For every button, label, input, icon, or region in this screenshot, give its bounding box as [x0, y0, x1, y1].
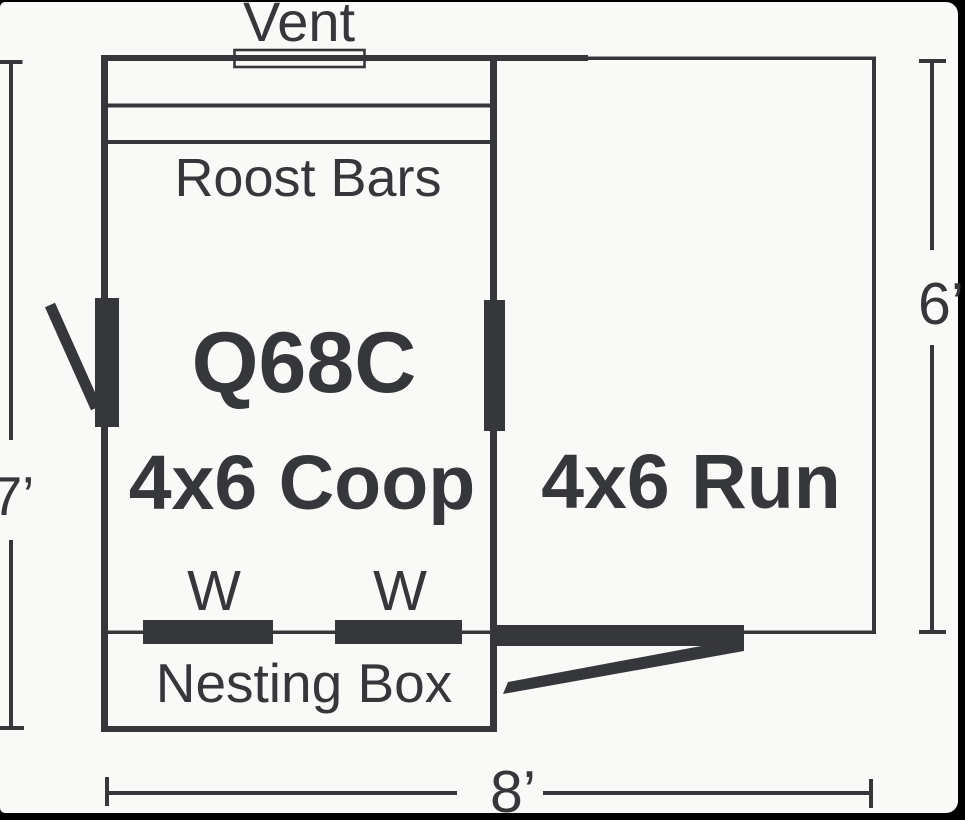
svg-text:W: W [187, 559, 241, 623]
svg-text:Q68C: Q68C [192, 315, 417, 411]
svg-text:W: W [373, 559, 427, 623]
svg-text:Roost Bars: Roost Bars [174, 148, 441, 208]
svg-text:4x6 Coop: 4x6 Coop [129, 440, 476, 526]
svg-text:4x6 Run: 4x6 Run [541, 439, 841, 525]
svg-text:Nesting Box: Nesting Box [156, 652, 453, 714]
svg-text:8’: 8’ [490, 759, 536, 820]
svg-text:7’: 7’ [0, 465, 34, 527]
svg-text:6’: 6’ [918, 271, 964, 337]
svg-text:Vent: Vent [243, 0, 356, 53]
